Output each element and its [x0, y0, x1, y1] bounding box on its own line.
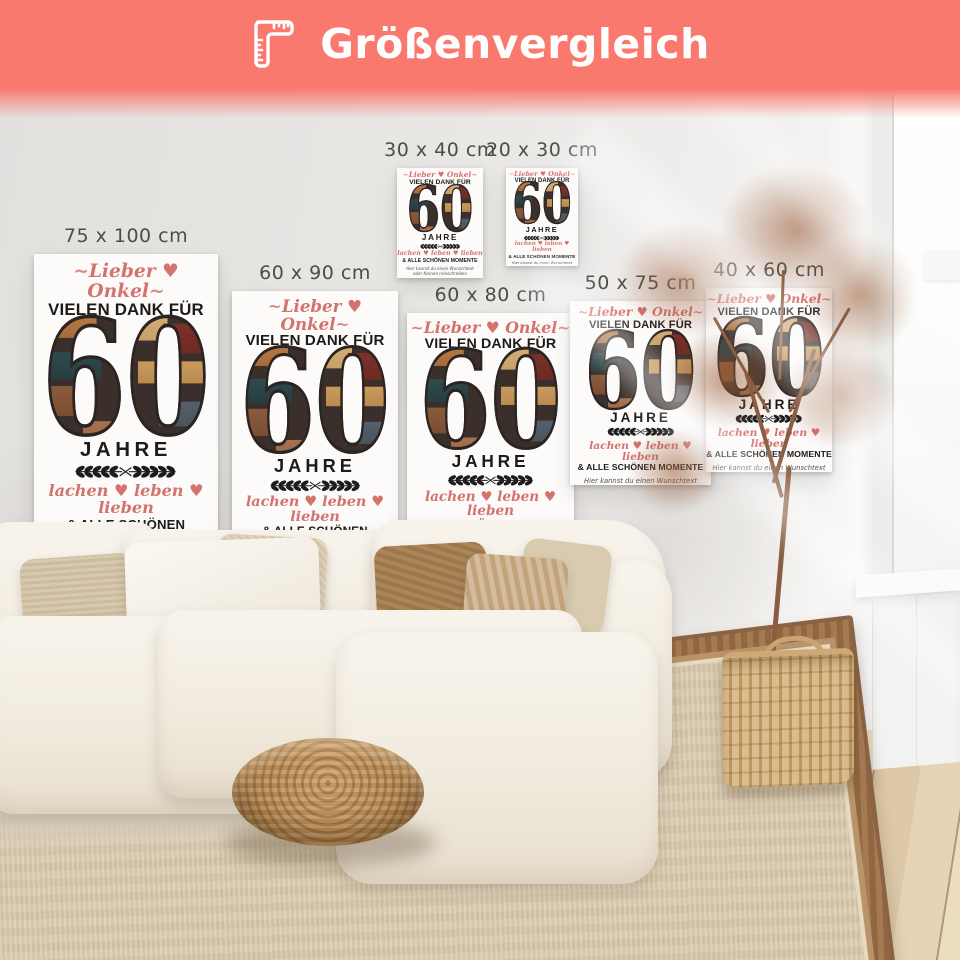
poster-size-label: 60 x 90 cm: [259, 262, 371, 284]
poster-number-collage: 60: [570, 325, 711, 416]
poster-sheet: Lieber ♥ Onkel VIELEN DANK FÜR 60 JAHRE: [397, 168, 483, 278]
poster-moments-line: & ALLE SCHÖNEN MOMENTE: [397, 258, 483, 265]
poster-sheet: Lieber ♥ Onkel VIELEN DANK FÜR 60 JAHRE: [506, 168, 578, 266]
poster-hint-line1: Hier kannst du einen Wunschtext: [713, 464, 826, 472]
poster-values-line: lachen ♥ leben ♥ lieben: [397, 251, 483, 258]
poster-size-label: 50 x 75 cm: [585, 272, 697, 294]
poster-number-collage: 60: [232, 341, 398, 464]
ruler-corner-icon: [250, 16, 302, 72]
poster-number-collage: 60: [407, 344, 574, 461]
poster-number-collage: 60: [397, 183, 483, 238]
poster: 75 x 100 cm Lieber ♥ Onkel VIELEN DANK F…: [34, 254, 218, 532]
poster-sheet: Lieber ♥ Onkel VIELEN DANK FÜR 60 JAHRE: [706, 288, 832, 472]
poster-size-label: 20 x 30 cm: [486, 139, 598, 161]
header-bar: Größenvergleich: [0, 0, 960, 88]
poster-number-collage: 60: [506, 181, 578, 230]
size-comparison-scene: 30 x 40 cm Lieber ♥ Onkel VIELEN DANK FÜ…: [0, 0, 960, 960]
poster-custom-text-hint: Hier kannst du einen Wunschtext oder Nam…: [570, 477, 711, 485]
poster-custom-text-hint: Hier kannst du einen Wunschtext oder Nam…: [506, 261, 578, 266]
poster-values-line: lachen ♥ leben ♥ lieben: [506, 242, 578, 254]
poster-sheet: Lieber ♥ Onkel VIELEN DANK FÜR 60 JAHRE: [570, 301, 711, 485]
poster-sheet: Lieber ♥ Onkel VIELEN DANK FÜR 60 JAHRE: [407, 313, 574, 548]
poster-hint-line1: Hier kannst du einen Wunschtext: [512, 261, 572, 265]
poster-moments-line: & ALLE SCHÖNEN MOMENTE: [570, 462, 711, 473]
poster: 30 x 40 cm Lieber ♥ Onkel VIELEN DANK FÜ…: [397, 168, 483, 278]
poster: 60 x 90 cm Lieber ♥ Onkel VIELEN DANK FÜ…: [232, 291, 398, 539]
poster-moments-line: & ALLE SCHÖNEN MOMENTE: [706, 449, 832, 460]
poster-number-collage: 60: [34, 310, 218, 448]
poster-hint-line2: oder Namen reinschreiben: [413, 271, 467, 276]
poster: 20 x 30 cm Lieber ♥ Onkel VIELEN DANK FÜ…: [506, 168, 578, 266]
poster-number-collage: 60: [706, 312, 832, 403]
poster-hint-line1: Hier kannst du einen Wunschtext: [584, 477, 697, 485]
poster: 60 x 80 cm Lieber ♥ Onkel VIELEN DANK FÜ…: [407, 313, 574, 548]
poster-size-label: 75 x 100 cm: [64, 225, 188, 247]
poster-values-line: lachen ♥ leben ♥ lieben: [570, 440, 711, 462]
poster-values-line: lachen ♥ leben ♥ lieben: [706, 427, 832, 449]
page-title: Größenvergleich: [320, 20, 710, 68]
poster-custom-text-hint: Hier kannst du einen Wunschtext oder Nam…: [706, 464, 832, 472]
poster-values-line: lachen ♥ leben ♥ lieben: [232, 495, 398, 525]
poster-sheet: Lieber ♥ Onkel VIELEN DANK FÜR 60 JAHRE: [34, 254, 218, 532]
poster-size-label: 30 x 40 cm: [384, 139, 496, 161]
storage-basket: [722, 648, 854, 789]
poster-sheet: Lieber ♥ Onkel VIELEN DANK FÜR 60 JAHRE: [232, 291, 398, 539]
poster-size-label: 40 x 60 cm: [713, 259, 825, 281]
poster-size-label: 60 x 80 cm: [435, 284, 547, 306]
poster: 50 x 75 cm Lieber ♥ Onkel VIELEN DANK FÜ…: [570, 301, 711, 485]
poster-moments-line: & ALLE SCHÖNEN MOMENTE: [506, 254, 578, 260]
wicker-pouf: [232, 738, 424, 846]
poster-hint-line1: Hier kannst du einen Wunschtext: [406, 266, 474, 271]
poster-values-line: lachen ♥ leben ♥ lieben: [407, 490, 574, 519]
poster-values-line: lachen ♥ leben ♥ lieben: [34, 483, 218, 517]
poster: 40 x 60 cm Lieber ♥ Onkel VIELEN DANK FÜ…: [706, 288, 832, 472]
poster-custom-text-hint: Hier kannst du einen Wunschtext oder Nam…: [397, 266, 483, 277]
